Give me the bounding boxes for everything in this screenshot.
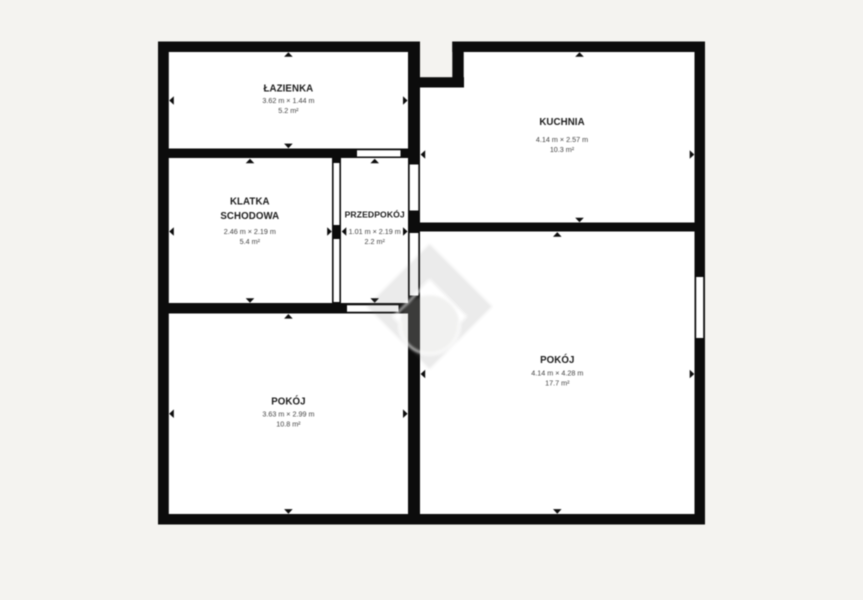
svg-text:ŁAZIENKA: ŁAZIENKA [264,84,314,95]
svg-text:3.63 m × 2.99 m: 3.63 m × 2.99 m [262,409,314,418]
svg-text:2.2 m²: 2.2 m² [365,237,386,246]
svg-text:4.14 m × 2.57 m: 4.14 m × 2.57 m [536,135,588,144]
svg-text:SCHODOWA: SCHODOWA [220,211,279,222]
svg-text:1.01 m × 2.19 m: 1.01 m × 2.19 m [349,227,401,236]
svg-text:4.14 m × 4.28 m: 4.14 m × 4.28 m [531,369,583,378]
svg-text:POKÓJ: POKÓJ [540,354,574,366]
svg-text:5.2 m²: 5.2 m² [278,106,299,115]
svg-text:KLATKA: KLATKA [230,197,270,208]
svg-text:5.4 m²: 5.4 m² [240,237,261,246]
svg-text:3.62 m × 1.44 m: 3.62 m × 1.44 m [262,96,314,105]
svg-text:POKÓJ: POKÓJ [271,396,305,408]
svg-text:17.7 m²: 17.7 m² [545,378,570,387]
svg-text:10.3 m²: 10.3 m² [550,145,575,154]
svg-text:10.8 m²: 10.8 m² [276,419,301,428]
svg-text:2.46 m × 2.19 m: 2.46 m × 2.19 m [224,227,276,236]
svg-text:PRZEDPOKÓJ: PRZEDPOKÓJ [345,208,405,219]
svg-text:KUCHNIA: KUCHNIA [539,117,584,128]
